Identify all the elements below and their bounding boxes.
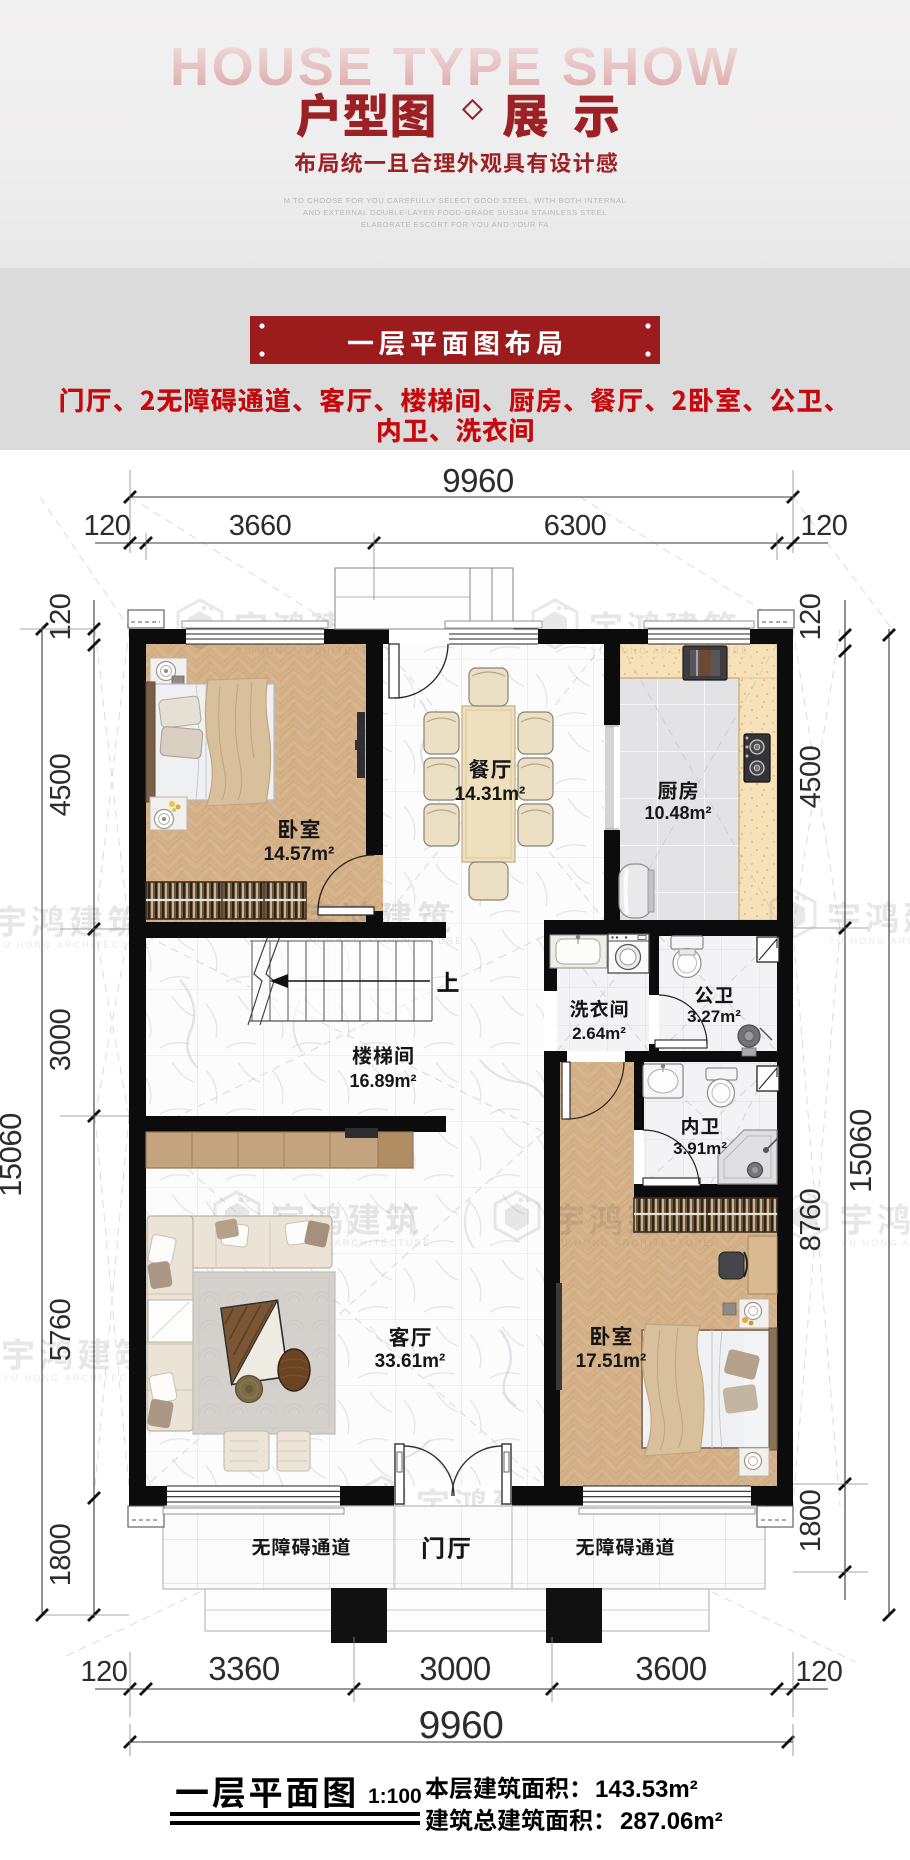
svg-text:6300: 6300 [544,510,607,542]
svg-text:3360: 3360 [208,1650,280,1687]
svg-text:3.27m²: 3.27m² [687,1007,741,1026]
svg-text:5760: 5760 [45,1299,77,1362]
svg-text:3.91m²: 3.91m² [673,1139,727,1158]
svg-text:10.48m²: 10.48m² [644,803,711,823]
svg-text:9960: 9960 [442,462,514,499]
svg-text:120: 120 [795,594,827,641]
svg-text:8760: 8760 [795,1189,827,1252]
svg-text:16.89m²: 16.89m² [349,1071,416,1091]
svg-text:15060: 15060 [843,1109,878,1193]
svg-text:YU HONG ARCHITECTURE: YU HONG ARCHITECTURE [553,1238,712,1248]
svg-text:287.06m²: 287.06m² [620,1808,723,1835]
svg-text:120: 120 [84,510,131,542]
svg-text:1:100: 1:100 [368,1785,422,1808]
svg-text:9960: 9960 [419,1704,504,1747]
svg-text:33.61m²: 33.61m² [375,1351,446,1372]
svg-text:17.51m²: 17.51m² [576,1351,647,1372]
svg-text:15060: 15060 [0,1113,28,1197]
svg-text:120: 120 [81,1656,128,1688]
svg-text:YU HONG ARCHITECTURE: YU HONG ARCHITECTURE [841,1238,910,1248]
svg-text:3660: 3660 [229,510,292,542]
svg-text:4500: 4500 [795,746,827,809]
svg-text:3000: 3000 [419,1650,491,1687]
svg-text:2.64m²: 2.64m² [572,1024,626,1043]
svg-text:14.57m²: 14.57m² [264,844,335,865]
svg-text:3000: 3000 [45,1009,77,1072]
svg-text:1800: 1800 [795,1490,827,1553]
svg-text:120: 120 [796,1656,843,1688]
svg-text:YU HONG ARCHITECTURE: YU HONG ARCHITECTURE [829,936,910,946]
svg-text:143.53m²: 143.53m² [595,1776,698,1803]
svg-text:120: 120 [45,594,77,641]
svg-text:120: 120 [801,510,848,542]
svg-text:14.31m²: 14.31m² [455,784,526,805]
svg-text:1800: 1800 [45,1524,77,1587]
svg-text:3600: 3600 [635,1650,707,1687]
svg-text:4500: 4500 [45,754,77,817]
